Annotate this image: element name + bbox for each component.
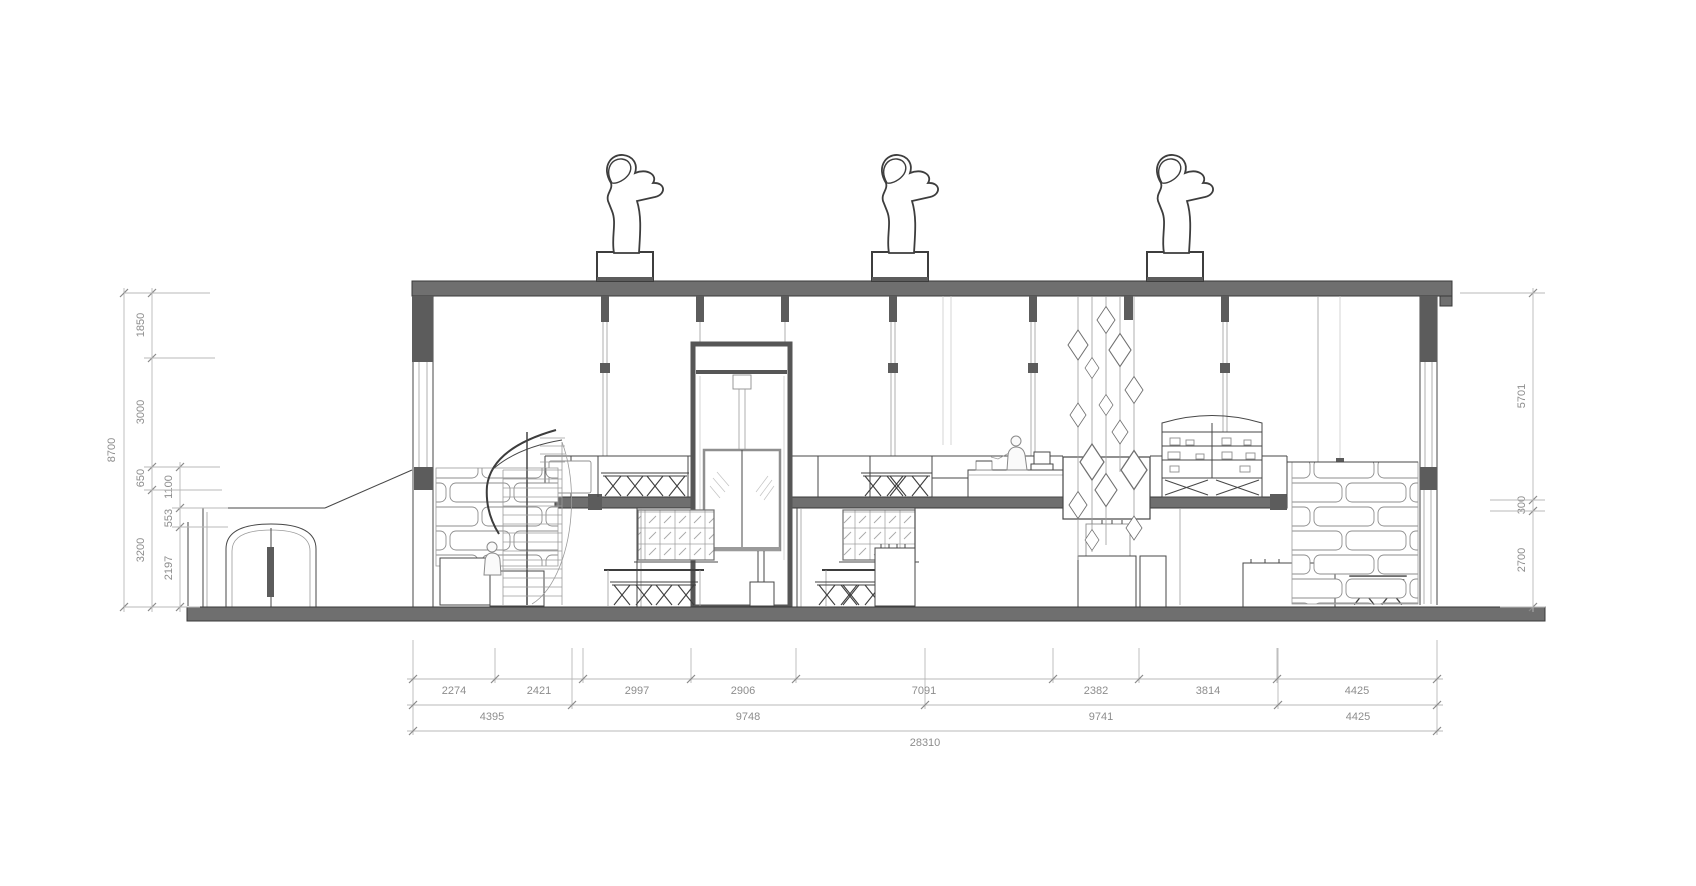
dim-9741: 9741 <box>1089 711 1113 723</box>
annex-entrance <box>188 470 412 607</box>
reception-desk-return <box>490 571 544 606</box>
dim-2906: 2906 <box>731 685 755 697</box>
dim-left-650: 650 <box>135 469 147 487</box>
stone-block-wall-right <box>1287 462 1418 604</box>
dim-2274: 2274 <box>442 685 466 697</box>
mezzanine-stool <box>643 473 689 496</box>
display-plinth <box>1078 556 1136 607</box>
ground-slab <box>187 607 1545 621</box>
right-dimension-chain: 5701 300 2700 <box>1460 288 1545 612</box>
diamond-garland <box>1063 296 1150 560</box>
mullion-column <box>1028 296 1038 456</box>
bar-item <box>976 461 992 470</box>
dim-4395: 4395 <box>480 711 504 723</box>
dim-right-2700: 2700 <box>1516 548 1528 572</box>
cash-register <box>1031 452 1053 470</box>
dim-left-3000: 3000 <box>135 400 147 424</box>
dim-left-2197: 2197 <box>163 556 175 580</box>
sculpture-pedestal <box>597 252 1203 281</box>
mezzanine-stool <box>601 473 647 496</box>
dim-right-5701: 5701 <box>1516 384 1528 408</box>
dim-left-553: 553 <box>163 509 175 527</box>
bar-hanger-rods <box>943 296 951 445</box>
dim-4425-b: 4425 <box>1346 711 1370 723</box>
mullion-column <box>888 296 898 456</box>
left-wall <box>412 296 433 607</box>
left-dimension-chain: 8700 1850 3000 650 3200 1100 553 2197 <box>106 288 228 612</box>
pendant-light <box>1336 296 1344 467</box>
dim-2421: 2421 <box>527 685 551 697</box>
elevator-shaft <box>693 344 790 607</box>
abstract-sculpture <box>882 155 938 253</box>
dim-4425: 4425 <box>1345 685 1369 697</box>
shaft-hanger-column <box>696 296 789 344</box>
dim-3814: 3814 <box>1196 685 1220 697</box>
roof-slab <box>412 281 1452 306</box>
dim-left-3200: 3200 <box>135 538 147 562</box>
abstract-sculpture <box>607 155 663 253</box>
door-handle <box>267 547 274 597</box>
mezzanine-stool <box>886 473 932 496</box>
ground-stool <box>610 582 656 605</box>
plinth-small <box>1140 556 1166 607</box>
dim-2382: 2382 <box>1084 685 1108 697</box>
barista-figure <box>991 436 1027 470</box>
section-drawing: 8700 1850 3000 650 3200 1100 553 2197 57… <box>0 0 1696 886</box>
dim-7091: 7091 <box>912 685 936 697</box>
display-cabinet <box>1162 416 1262 498</box>
dim-left-1100: 1100 <box>163 475 175 499</box>
dim-2997: 2997 <box>625 685 649 697</box>
elevator-glass-car <box>704 450 780 551</box>
dim-9748: 9748 <box>736 711 760 723</box>
dim-left-1850: 1850 <box>135 313 147 337</box>
right-wall <box>1420 296 1437 605</box>
mullion-column <box>600 296 610 456</box>
bottom-dimension-rows: 2274 2421 2997 2906 7091 2382 3814 4425 … <box>407 640 1443 749</box>
rooftop-sculptures <box>597 155 1213 281</box>
abstract-sculpture <box>1157 155 1213 253</box>
dim-left-overall: 8700 <box>106 438 118 462</box>
dim-28310: 28310 <box>910 737 941 749</box>
section-drawing-canvas: 8700 1850 3000 650 3200 1100 553 2197 57… <box>0 0 1696 886</box>
banquette-box <box>875 548 915 606</box>
